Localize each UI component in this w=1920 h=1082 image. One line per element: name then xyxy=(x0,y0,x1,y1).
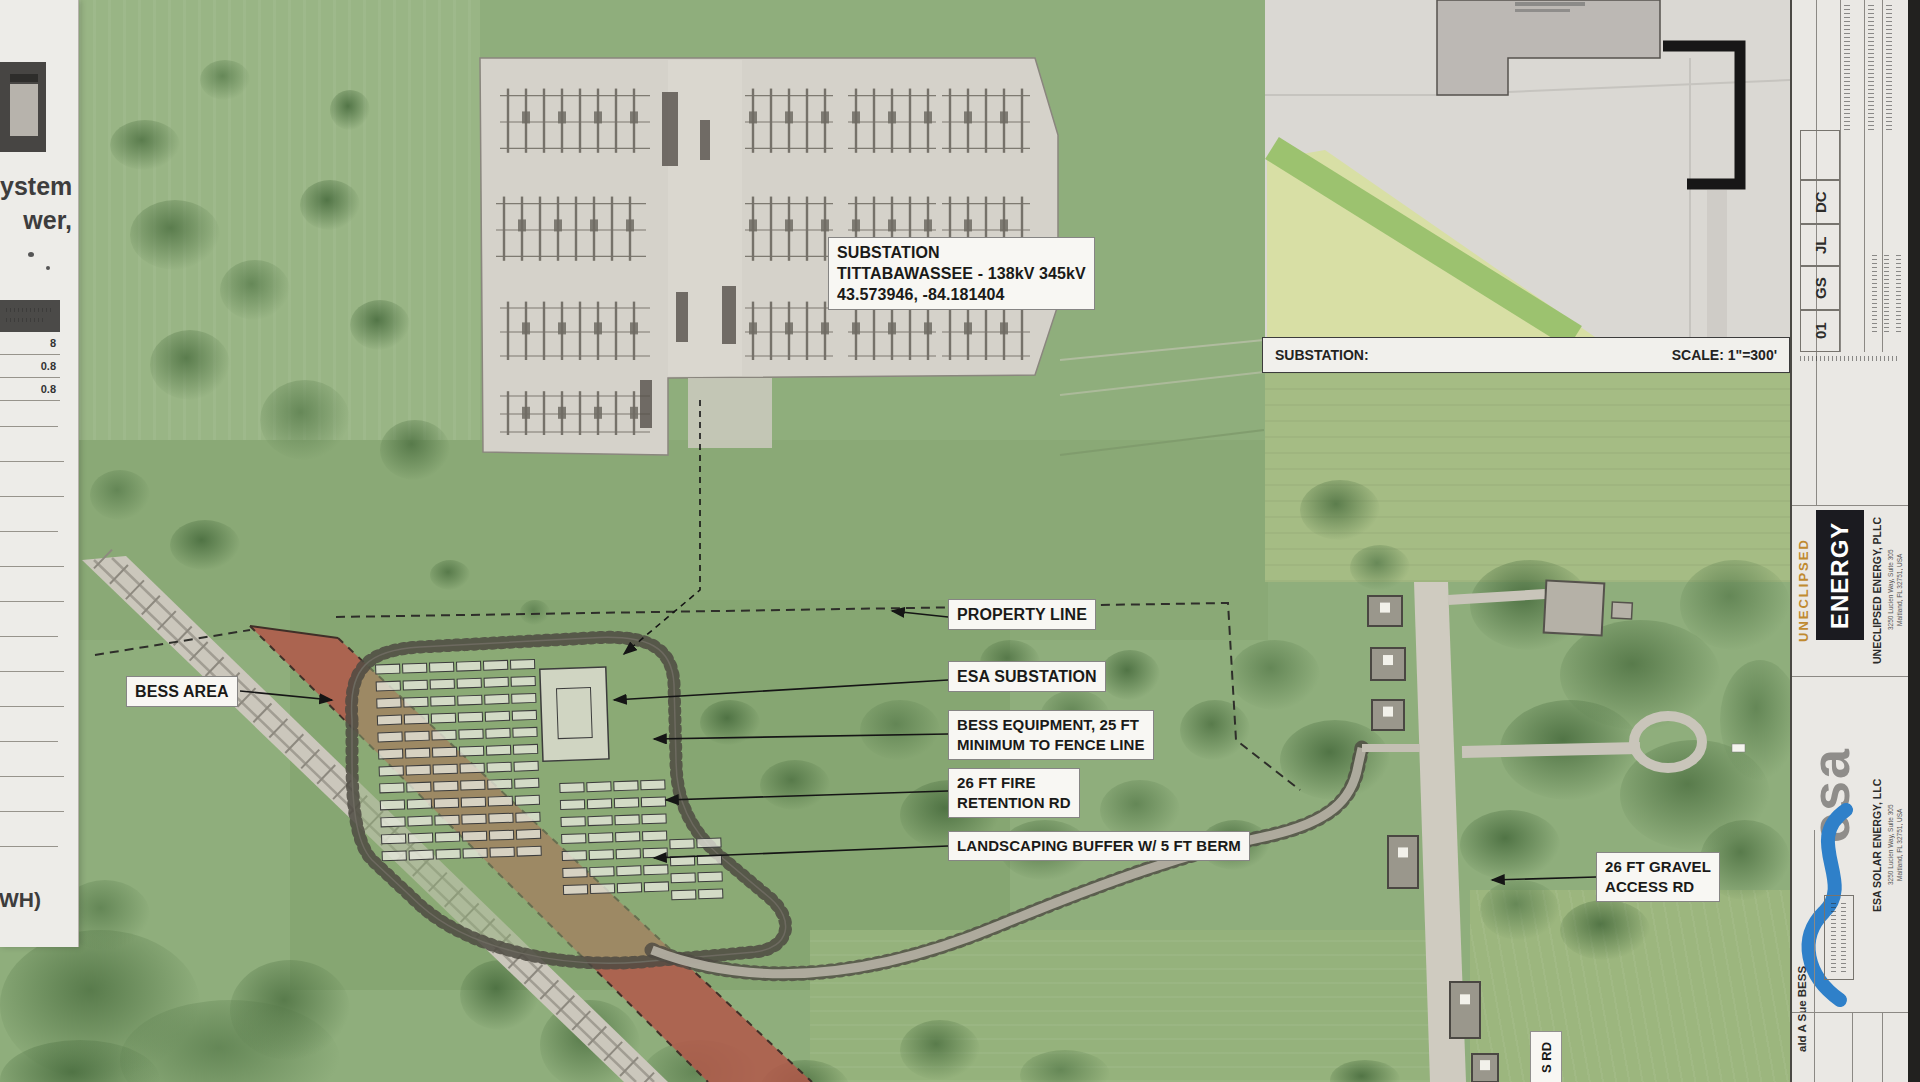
fine-print xyxy=(1886,4,1892,130)
property-line-label: PROPERTY LINE xyxy=(948,599,1096,630)
fire-retention-label: 26 FT FIRE RETENTION RD xyxy=(948,768,1080,818)
revision-cell: JL xyxy=(1800,224,1840,266)
ruled-rows xyxy=(0,392,64,847)
revision-cell-empty xyxy=(1800,130,1840,180)
ruled-row xyxy=(0,532,64,567)
road-name-label: S RD xyxy=(1530,1031,1562,1082)
utility-lines xyxy=(1060,340,1264,455)
road-name-text: S RD xyxy=(1531,1032,1561,1082)
substation-callout-line2: TITTABAWASSEE - 138kV 345kV xyxy=(837,263,1086,284)
revision-cell: 01 xyxy=(1800,310,1840,352)
table-header xyxy=(0,300,60,332)
ruled-row xyxy=(0,602,58,637)
fine-print xyxy=(1896,252,1901,332)
ruled-row xyxy=(0,462,64,497)
bess-area-label: BESS AREA xyxy=(126,676,238,707)
revision-cell: DC xyxy=(1800,180,1840,224)
left-panel-table: 8 0.8 0.8 xyxy=(0,300,60,401)
inset-title: SUBSTATION: xyxy=(1275,347,1369,363)
esa-substation-label: ESA SUBSTATION xyxy=(948,661,1106,692)
substation-callout-line1: SUBSTATION xyxy=(837,242,1086,263)
fine-print xyxy=(1868,4,1874,130)
landscaping-buffer-label: LANDSCAPING BUFFER W/ 5 FT BERM xyxy=(948,831,1250,861)
fine-print xyxy=(1831,902,1836,972)
coordinates-box xyxy=(1824,895,1854,980)
ruled-row xyxy=(0,742,64,777)
revision-cell: GS xyxy=(1800,266,1840,310)
left-document-panel: ystem wer, 8 0.8 0.8 (WH) xyxy=(0,0,79,947)
fine-print xyxy=(1872,252,1877,332)
ruled-row xyxy=(0,672,64,707)
bess-yard xyxy=(352,637,1420,973)
uneclipsed-address-2: Maitland, FL 32751, USA xyxy=(1895,505,1904,675)
fine-print xyxy=(1884,252,1889,332)
inset-title-bar: SUBSTATION: SCALE: 1"=300' xyxy=(1262,337,1790,373)
left-text-fragment-1: ystem xyxy=(0,172,77,201)
uneclipsed-address-1: 3250 Lucien Way, Suite 305 xyxy=(1886,505,1895,675)
project-name-fragment: ald A Sue BESS xyxy=(1794,935,1810,1082)
table-value: 0.8 xyxy=(0,355,60,378)
fine-print xyxy=(1800,356,1900,361)
esa-address-1: 3250 Lucien Way, Suite 305 xyxy=(1886,700,1895,990)
sheet-edge xyxy=(1908,0,1920,1082)
ruled-row xyxy=(0,567,64,602)
substation-inset-plan xyxy=(1265,0,1790,372)
table-value: 8 xyxy=(0,332,60,355)
bess-equipment-label: BESS EQUIPMENT, 25 FT MINIMUM TO FENCE L… xyxy=(948,710,1154,760)
uneclipsed-energy-logo: ENERGY xyxy=(1816,510,1864,640)
battery-cabinet-image xyxy=(10,84,38,136)
inset-substation-parcel xyxy=(1437,0,1660,95)
substation-callout: SUBSTATION TITTABAWASSEE - 138kV 345kV 4… xyxy=(828,237,1095,310)
gravel-access-label: 26 FT GRAVEL ACCESS RD xyxy=(1596,852,1720,902)
ruled-row xyxy=(0,637,64,672)
esa-address-2: Maitland, FL 32751, USA xyxy=(1895,700,1904,990)
site-plan-photo: SUBSTATION: SCALE: 1"=300' SUBSTATION TI… xyxy=(0,0,1920,1082)
left-text-fragment-bottom: (WH) xyxy=(0,888,41,912)
substation-callout-line3: 43.573946, -84.181404 xyxy=(837,284,1086,305)
left-text-fragment-2: wer, xyxy=(0,206,77,235)
ruled-row xyxy=(0,497,58,532)
uneclipsed-company-name: UNECLIPSED ENERGY, PLLC xyxy=(1870,505,1884,675)
uneclipsed-wordmark: UNECLIPSED xyxy=(1794,505,1812,675)
ruled-row xyxy=(0,777,64,812)
left-panel-photo xyxy=(0,62,46,152)
fine-print xyxy=(1844,4,1850,130)
ruled-row xyxy=(0,427,64,462)
ruled-row xyxy=(0,707,58,742)
inset-scale: SCALE: 1"=300' xyxy=(1672,347,1777,363)
fine-print xyxy=(1841,902,1846,972)
esa-company-name: ESA SOLAR ENERGY, LLC xyxy=(1870,700,1884,990)
ruled-row xyxy=(0,392,58,427)
inset-drawing xyxy=(1265,0,1790,372)
inset-road xyxy=(1707,190,1727,337)
roads-and-houses xyxy=(1368,581,1745,1082)
inset-bess-boundary xyxy=(1663,46,1740,184)
title-block: DC JL GS 01 UNECLIPSED ENERGY UNECLIPSED… xyxy=(1790,0,1920,1082)
ruled-row xyxy=(0,812,58,847)
